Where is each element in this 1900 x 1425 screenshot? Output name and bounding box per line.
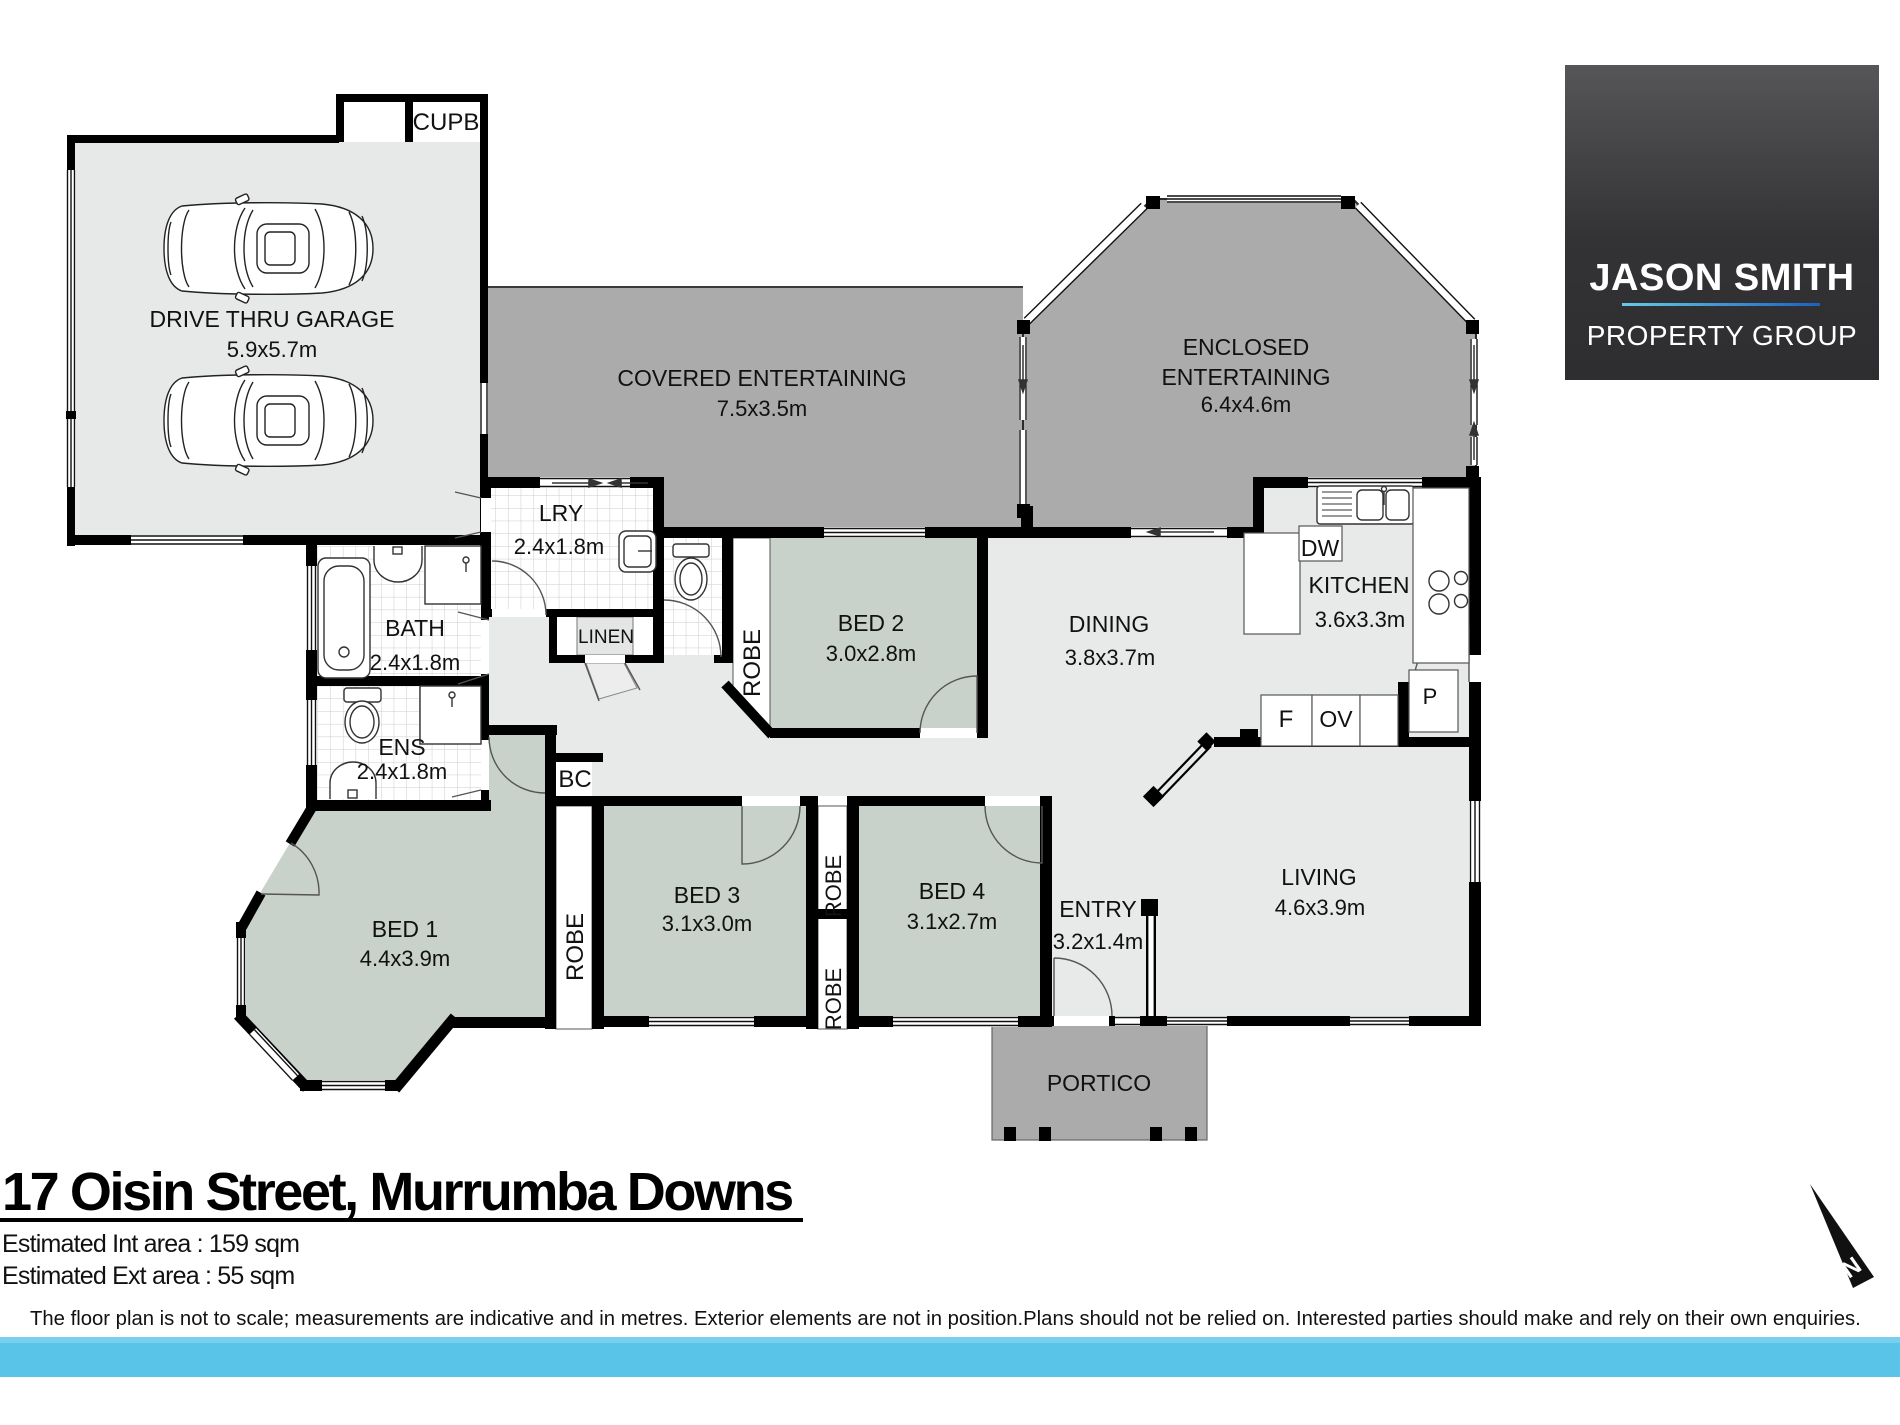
svg-text:BED 4: BED 4	[919, 878, 986, 904]
svg-text:DRIVE THRU GARAGE: DRIVE THRU GARAGE	[150, 306, 395, 332]
svg-text:BED 3: BED 3	[674, 882, 740, 908]
svg-text:BC: BC	[558, 766, 591, 793]
svg-text:LINEN: LINEN	[578, 627, 634, 648]
svg-text:2.4x1.8m: 2.4x1.8m	[357, 759, 448, 784]
svg-text:CUPB: CUPB	[413, 109, 480, 136]
svg-text:OV: OV	[1319, 706, 1353, 732]
svg-text:4.4x3.9m: 4.4x3.9m	[360, 946, 451, 971]
svg-text:F: F	[1279, 706, 1294, 733]
svg-text:5.9x5.7m: 5.9x5.7m	[227, 337, 318, 362]
svg-text:6.4x4.6m: 6.4x4.6m	[1201, 392, 1292, 417]
svg-text:ENTERTAINING: ENTERTAINING	[1161, 364, 1330, 390]
svg-text:Estimated Ext area : 55 sqm: Estimated Ext area : 55 sqm	[2, 1262, 294, 1290]
svg-text:BED 2: BED 2	[838, 610, 904, 636]
svg-text:3.8x3.7m: 3.8x3.7m	[1065, 645, 1156, 670]
svg-text:ENCLOSED: ENCLOSED	[1183, 334, 1310, 360]
svg-text:ENTRY: ENTRY	[1059, 896, 1137, 922]
svg-text:P: P	[1423, 684, 1438, 709]
svg-text:2.4x1.8m: 2.4x1.8m	[370, 650, 461, 675]
svg-text:JASON SMITH: JASON SMITH	[1589, 257, 1854, 299]
svg-text:ROBE: ROBE	[821, 855, 846, 917]
svg-text:3.0x2.8m: 3.0x2.8m	[826, 641, 917, 666]
svg-text:DINING: DINING	[1069, 611, 1150, 637]
svg-text:17 Oisin Street, Murrumba Down: 17 Oisin Street, Murrumba Downs	[2, 1162, 792, 1222]
svg-text:3.2x1.4m: 3.2x1.4m	[1053, 929, 1144, 954]
svg-text:3.1x2.7m: 3.1x2.7m	[907, 909, 998, 934]
svg-text:3.1x3.0m: 3.1x3.0m	[662, 911, 753, 936]
svg-text:PORTICO: PORTICO	[1047, 1070, 1151, 1096]
svg-text:3.6x3.3m: 3.6x3.3m	[1315, 607, 1406, 632]
svg-text:BED 1: BED 1	[372, 916, 438, 942]
svg-text:ROBE: ROBE	[821, 968, 846, 1030]
svg-text:LRY: LRY	[539, 500, 583, 526]
svg-text:KITCHEN: KITCHEN	[1309, 572, 1410, 598]
svg-text:ENS: ENS	[378, 734, 425, 760]
svg-text:4.6x3.9m: 4.6x3.9m	[1275, 895, 1366, 920]
svg-text:2.4x1.8m: 2.4x1.8m	[514, 534, 605, 559]
svg-text:DW: DW	[1301, 535, 1340, 561]
svg-text:COVERED ENTERTAINING: COVERED ENTERTAINING	[617, 365, 906, 391]
svg-text:The floor plan is not to scale: The floor plan is not to scale; measurem…	[30, 1308, 1861, 1330]
svg-text:ROBE: ROBE	[562, 913, 589, 981]
svg-text:PROPERTY GROUP: PROPERTY GROUP	[1587, 320, 1857, 351]
svg-text:Estimated Int area : 159 sqm: Estimated Int area : 159 sqm	[2, 1230, 299, 1258]
svg-text:BATH: BATH	[385, 615, 445, 641]
svg-text:7.5x3.5m: 7.5x3.5m	[717, 396, 808, 421]
svg-text:ROBE: ROBE	[739, 629, 766, 697]
svg-text:LIVING: LIVING	[1281, 864, 1356, 890]
